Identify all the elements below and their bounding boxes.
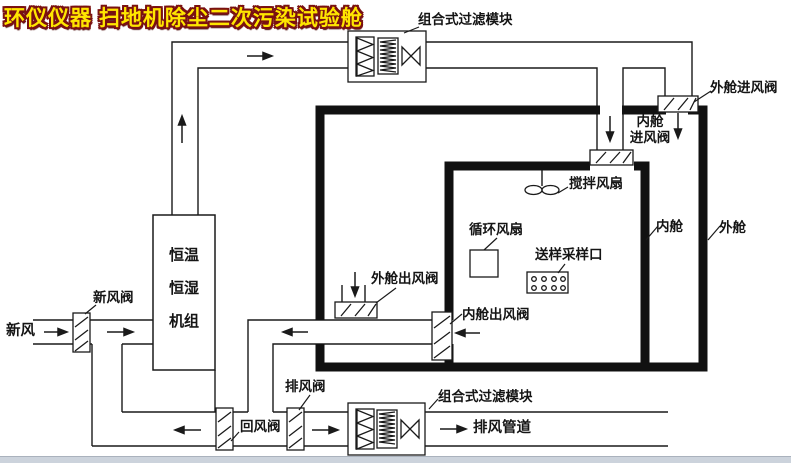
arrow-inner-outlet-left-icon xyxy=(456,330,480,337)
inner-chamber-label: 内舱 xyxy=(656,219,683,235)
outer-inlet-valve-label: 外舱进风阀 xyxy=(710,80,778,96)
outer-chamber-label: 外舱 xyxy=(719,220,746,236)
arrow-outlet-duct-left-icon xyxy=(283,329,308,336)
arrow-supply-right-icon xyxy=(247,53,272,60)
arrow-exhaust-2-icon xyxy=(440,426,466,433)
arrow-inner-inlet-down-icon xyxy=(607,116,614,141)
outer-outlet-valve-symbol xyxy=(335,302,377,318)
leader-filter-bottom xyxy=(429,399,438,409)
arrow-riser-up-icon xyxy=(179,116,186,143)
return-valve-symbol xyxy=(216,408,233,450)
fresh-air-label: 新风 xyxy=(6,323,35,340)
bottom-strip xyxy=(0,456,791,463)
inner-outlet-valve-label: 内舱出风阀 xyxy=(462,307,530,323)
fresh-air-valve-symbol xyxy=(73,313,90,352)
outer-chamber-wall-left-top xyxy=(320,110,600,320)
arrow-fresh-air-1-icon xyxy=(44,329,67,336)
ahu-unit-label: 恒温 恒湿 机组 xyxy=(154,240,214,339)
page-title: 环仪仪器 扫地机除尘二次污染试验舱 xyxy=(4,2,363,32)
arrow-fresh-air-2-icon xyxy=(107,329,133,336)
exhaust-duct-label: 排风管道 xyxy=(473,420,531,437)
exhaust-valve-label: 排风阀 xyxy=(285,379,326,395)
inner-inlet-valve-label: 内舱 进风阀 xyxy=(622,114,678,145)
inner-outlet-valve-symbol xyxy=(432,312,452,360)
filter-bottom-label: 组合式过滤模块 xyxy=(438,389,533,405)
outer-inlet-valve-symbol xyxy=(658,96,698,112)
sample-port-icon xyxy=(527,272,568,293)
inner-inlet-valve-symbol xyxy=(590,150,633,165)
stir-fan-icon xyxy=(525,186,559,195)
duct-lines xyxy=(33,42,692,446)
inner-chamber-wall-right xyxy=(634,166,645,367)
leader-circ-fan xyxy=(484,238,497,250)
stir-fan-label: 搅拌风扇 xyxy=(569,176,623,192)
filter-module-top xyxy=(348,31,426,82)
exhaust-valve-symbol xyxy=(287,408,304,450)
supply-duct-bottom-line xyxy=(198,68,597,215)
circ-fan-icon xyxy=(470,250,498,277)
diagram-stage: 环仪仪器 扫地机除尘二次污染试验舱 组合式过滤模块 外舱进风阀 内舱 进风阀 搅… xyxy=(0,0,791,463)
outlet-duct-bottom xyxy=(273,344,432,412)
arrow-outer-outlet-down-icon xyxy=(352,272,359,296)
filter-top-label: 组合式过滤模块 xyxy=(418,12,513,28)
chamber-walls xyxy=(320,110,703,367)
leader-outer-outlet-valve xyxy=(376,288,396,303)
sample-port-label: 送样采样口 xyxy=(535,247,603,263)
arrow-return-left-icon xyxy=(175,427,201,434)
circ-fan-label: 循环风扇 xyxy=(469,222,523,238)
return-valve-label: 回风阀 xyxy=(240,419,281,435)
chamber-equipment xyxy=(470,186,568,294)
outer-outlet-valve-label: 外舱出风阀 xyxy=(371,271,439,287)
fresh-air-valve-label: 新风阀 xyxy=(93,290,134,306)
arrow-exhaust-1-icon xyxy=(312,427,338,434)
filter-module-bottom xyxy=(348,403,425,455)
